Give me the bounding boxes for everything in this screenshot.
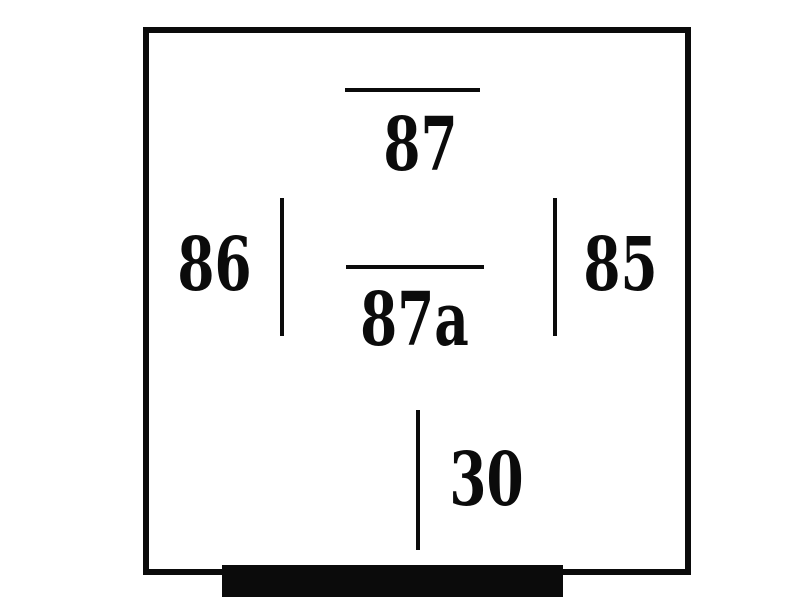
relay-pinout-diagram: 87 86 87a 85 30 [0,0,800,615]
relay-mounting-tab [222,565,563,597]
pin-86-label-text: 86 [177,228,251,302]
pin-87-label: 87 [350,110,490,180]
pin-87a-label: 87a [344,285,484,355]
pin-30-label: 30 [416,445,556,515]
pin-30-label-text: 30 [449,443,523,517]
pin-86-terminal-line [280,198,284,336]
pin-87-terminal-line [345,88,480,92]
pin-85-label: 85 [550,230,690,300]
pin-87a-terminal-line [346,265,484,269]
pin-87a-label-text: 87a [360,283,469,357]
pin-86-label: 86 [144,230,284,300]
pin-85-label-text: 85 [583,228,657,302]
pin-87-label-text: 87 [383,108,457,182]
